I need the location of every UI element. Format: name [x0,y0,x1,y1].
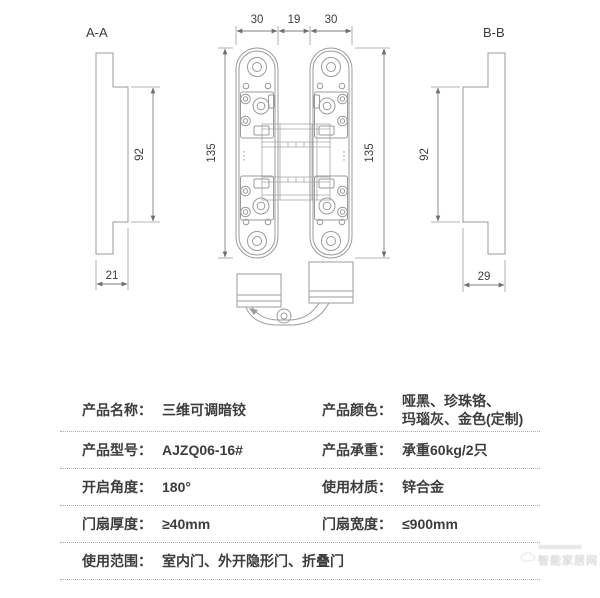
color-line-2: 玛瑙灰、金色(定制) [402,410,523,428]
spec-label: 产品承重： [322,440,392,460]
spec-value: 180° [162,478,191,496]
svg-text:21: 21 [106,270,119,282]
svg-text:92: 92 [134,148,146,161]
section-b-dim-92: 92 [419,87,460,222]
section-b-view: B-B 92 29 [419,25,505,292]
spec-value: ≥40mm [162,515,210,533]
spec-cell-model: 产品型号： AJZQ06-16# [60,440,300,460]
spec-label: 产品名称： [82,400,152,420]
spec-value: 三维可调暗铰 [162,401,246,419]
spec-cell-angle: 开启角度： 180° [60,477,300,497]
svg-text:135: 135 [364,143,376,162]
watermark-tagline [538,545,582,549]
spec-label: 门扇宽度： [322,514,392,534]
spec-row-angle-material: 开启角度： 180° 使用材质： 锌合金 [60,469,540,506]
spec-label: 使用材质： [322,477,392,497]
spec-label: 门扇厚度： [82,514,152,534]
technical-drawing: A-A 92 21 B-B [0,0,600,388]
spec-cell-load: 产品承重： 承重60kg/2只 [300,440,540,460]
watermark-text-block: 智能家居网 [538,545,598,568]
section-b-profile [463,53,505,254]
spec-label: 使用范围： [82,551,152,571]
spec-value: 锌合金 [402,478,444,496]
section-a-label: A-A [86,25,108,40]
spec-cell-door-thickness: 门扇厚度： ≥40mm [60,514,300,534]
front-view-dim-height-right: 135 [355,48,390,258]
spec-cell-usage-scope: 使用范围： 室内门、外开隐形门、折叠门 [60,551,540,571]
spec-row-scope: 使用范围： 室内门、外开隐形门、折叠门 [60,543,540,580]
section-a-dim-92: 92 [131,87,160,222]
spec-value: AJZQ06-16# [162,441,243,459]
front-view-dim-top: 30 19 30 [236,14,352,45]
spec-cell-product-color: 产品颜色： 哑黑、珍珠铬、 玛瑙灰、金色(定制) [300,392,540,428]
spec-label: 产品颜色： [322,400,392,420]
spec-label: 开启角度： [82,477,152,497]
watermark: 智能家居网 [520,545,598,568]
svg-text:19: 19 [288,14,301,26]
spec-cell-product-name: 产品名称： 三维可调暗铰 [60,400,300,420]
svg-text:30: 30 [325,14,338,26]
spec-label: 产品型号： [82,440,152,460]
spec-row-model-load: 产品型号： AJZQ06-16# 产品承重： 承重60kg/2只 [60,432,540,469]
svg-text:135: 135 [206,143,218,162]
svg-text:30: 30 [251,14,264,26]
spec-row-name-color: 产品名称： 三维可调暗铰 产品颜色： 哑黑、珍珠铬、 玛瑙灰、金色(定制) [60,389,540,432]
spec-value: 承重60kg/2只 [402,441,488,459]
section-b-dim-29: 29 [463,228,505,292]
watermark-site-name: 智能家居网 [538,552,598,568]
hinge-plate-right [310,48,352,258]
section-b-label: B-B [483,25,505,40]
hinge-bottom-view [237,262,353,325]
spec-cell-door-width: 门扇宽度： ≤900mm [300,514,540,534]
front-view-dim-height-left: 135 [206,48,233,258]
cloud-icon [520,547,535,567]
svg-text:92: 92 [419,148,431,161]
section-a-profile [96,53,128,254]
hinge-front-view: 30 19 30 135 135 [206,14,390,258]
spec-table: 产品名称： 三维可调暗铰 产品颜色： 哑黑、珍珠铬、 玛瑙灰、金色(定制) 产品… [60,389,540,580]
section-a-dim-21: 21 [96,228,128,290]
spec-value: 室内门、外开隐形门、折叠门 [162,552,344,570]
spec-value: ≤900mm [402,515,458,533]
section-a-view: A-A 92 21 [86,25,160,290]
color-line-1: 哑黑、珍珠铬、 [402,392,523,410]
spec-value: 哑黑、珍珠铬、 玛瑙灰、金色(定制) [402,392,523,428]
product-spec-sheet: A-A 92 21 B-B [0,0,600,598]
svg-text:29: 29 [478,271,491,283]
hinge-plate-left [236,48,278,258]
spec-row-thickness-width: 门扇厚度： ≥40mm 门扇宽度： ≤900mm [60,506,540,543]
spec-cell-material: 使用材质： 锌合金 [300,477,540,497]
